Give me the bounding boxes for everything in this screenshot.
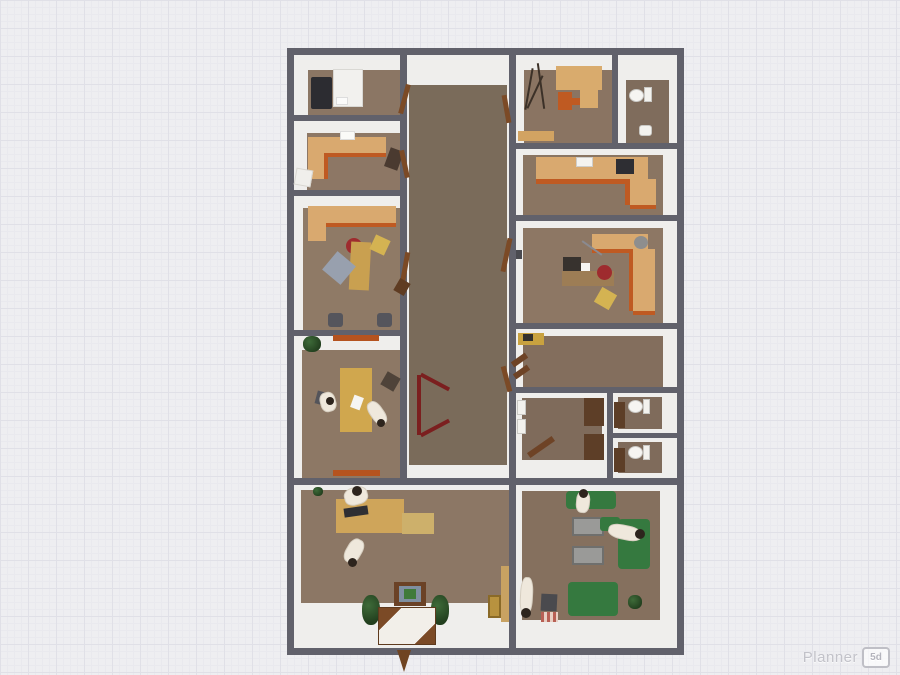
office-c-wall-hook[interactable]: [516, 250, 522, 259]
picture-frame-art: [404, 589, 416, 599]
sink-top[interactable]: [639, 125, 652, 136]
stall-2-toilet-bowl[interactable]: [628, 446, 643, 459]
wall-right-div-office[interactable]: [516, 215, 677, 221]
office-c-paper[interactable]: [581, 263, 590, 271]
small-office-floor[interactable]: [523, 336, 663, 387]
stall-2-cabinet[interactable]: [614, 448, 625, 472]
wall-stall-div[interactable]: [607, 433, 677, 438]
wall-left-div-1[interactable]: [294, 115, 400, 121]
office-c-trim-v[interactable]: [629, 249, 633, 311]
lounge-person-2-hair: [635, 529, 645, 539]
wall-right-div-kitchen[interactable]: [516, 143, 677, 149]
wall-bottom-row-top[interactable]: [287, 478, 684, 485]
office-a-desk-trim-h[interactable]: [326, 153, 386, 157]
reception-desk-return[interactable]: [402, 513, 434, 534]
kitchen-stove[interactable]: [616, 159, 634, 174]
lounge-plant[interactable]: [628, 595, 642, 609]
stall-1-toilet-bowl[interactable]: [628, 400, 643, 413]
office-c-chair-red[interactable]: [597, 265, 612, 280]
office-c-corner-sink[interactable]: [634, 236, 648, 249]
meeting-wall-shelf-2[interactable]: [333, 470, 380, 476]
console-table[interactable]: [378, 607, 436, 645]
wall-outer-right[interactable]: [677, 48, 684, 655]
planner-5d-logo-icon: 5d: [862, 647, 890, 668]
stall-1-cabinet[interactable]: [614, 402, 625, 428]
kitchen-sink[interactable]: [576, 157, 593, 167]
wall-right-div-small[interactable]: [516, 323, 677, 329]
wall-right-div-top[interactable]: [612, 48, 618, 149]
office-a-desk-trim-v[interactable]: [324, 153, 328, 179]
kitchen-leg-trim-v[interactable]: [625, 179, 630, 205]
coffee-table-2[interactable]: [572, 546, 604, 565]
office-c-counter-leg[interactable]: [633, 249, 655, 311]
kitchen-counter-leg[interactable]: [630, 179, 656, 205]
washroom-mirror-1[interactable]: [584, 398, 604, 426]
kitchen-leg-trim-b[interactable]: [630, 205, 656, 209]
reception-plant-small[interactable]: [313, 487, 323, 496]
stall-1-toilet-tank[interactable]: [643, 399, 650, 414]
wall-left-div-2[interactable]: [294, 190, 400, 196]
wall-outer-bottom[interactable]: [287, 648, 684, 655]
office-b-guest-chair-2[interactable]: [377, 313, 392, 327]
yoga-mat-gray[interactable]: [541, 594, 558, 612]
meeting-person-2-hair: [377, 419, 385, 427]
door-panel-tan[interactable]: [501, 566, 509, 622]
bench-tan[interactable]: [518, 131, 554, 141]
lounge-sofa-top[interactable]: [566, 491, 616, 509]
wall-right-div-wash[interactable]: [516, 387, 677, 393]
printer[interactable]: [311, 77, 332, 109]
watermark-text: Planner: [803, 649, 858, 666]
washroom-sink-2[interactable]: [517, 419, 526, 434]
meeting-wall-shelf[interactable]: [333, 335, 379, 341]
office-b-desk-leg[interactable]: [308, 223, 326, 241]
office-b-guest-chair-1[interactable]: [328, 313, 343, 327]
entrance-door-marker[interactable]: [397, 650, 411, 672]
office-b-desk[interactable]: [308, 206, 396, 223]
reception-person-hair: [352, 486, 362, 496]
lounge-sofa-bottom[interactable]: [568, 582, 618, 616]
wall-outer-left[interactable]: [287, 48, 294, 655]
washroom-mirror-2[interactable]: [584, 434, 604, 460]
wall-outer-top[interactable]: [287, 48, 684, 55]
toilet-top-bowl[interactable]: [629, 89, 644, 102]
kitchen-counter-trim[interactable]: [536, 179, 626, 184]
yoga-person-hair: [521, 608, 531, 618]
reception-visitor-hair: [348, 558, 357, 567]
lounge-person-1-hair: [579, 489, 588, 498]
meeting-person-1-hair: [326, 397, 334, 405]
watermark: Planner 5d: [803, 647, 890, 668]
stall-2-toilet-tank[interactable]: [643, 445, 650, 460]
wall-center-divider[interactable]: [509, 48, 516, 655]
meeting-plant[interactable]: [303, 336, 321, 352]
gold-picture[interactable]: [488, 595, 501, 618]
office-a-laptop[interactable]: [340, 131, 355, 140]
washroom-sink-1[interactable]: [517, 400, 526, 415]
toilet-top-tank[interactable]: [644, 87, 652, 102]
planner-canvas[interactable]: Planner 5d: [0, 0, 900, 675]
wardrobe-side-block[interactable]: [580, 88, 598, 108]
office-c-monitor[interactable]: [563, 257, 581, 271]
small-office-device[interactable]: [523, 334, 533, 341]
office-b-desk-trim[interactable]: [326, 223, 396, 227]
desk-tray[interactable]: [336, 97, 348, 105]
hallway-floor[interactable]: [409, 85, 507, 465]
wardrobe[interactable]: [556, 66, 602, 90]
office-a-chair-white[interactable]: [294, 168, 314, 188]
yoga-mat-striped[interactable]: [541, 612, 558, 622]
office-c-trim-b[interactable]: [633, 311, 655, 315]
easel-leg[interactable]: [417, 375, 421, 435]
